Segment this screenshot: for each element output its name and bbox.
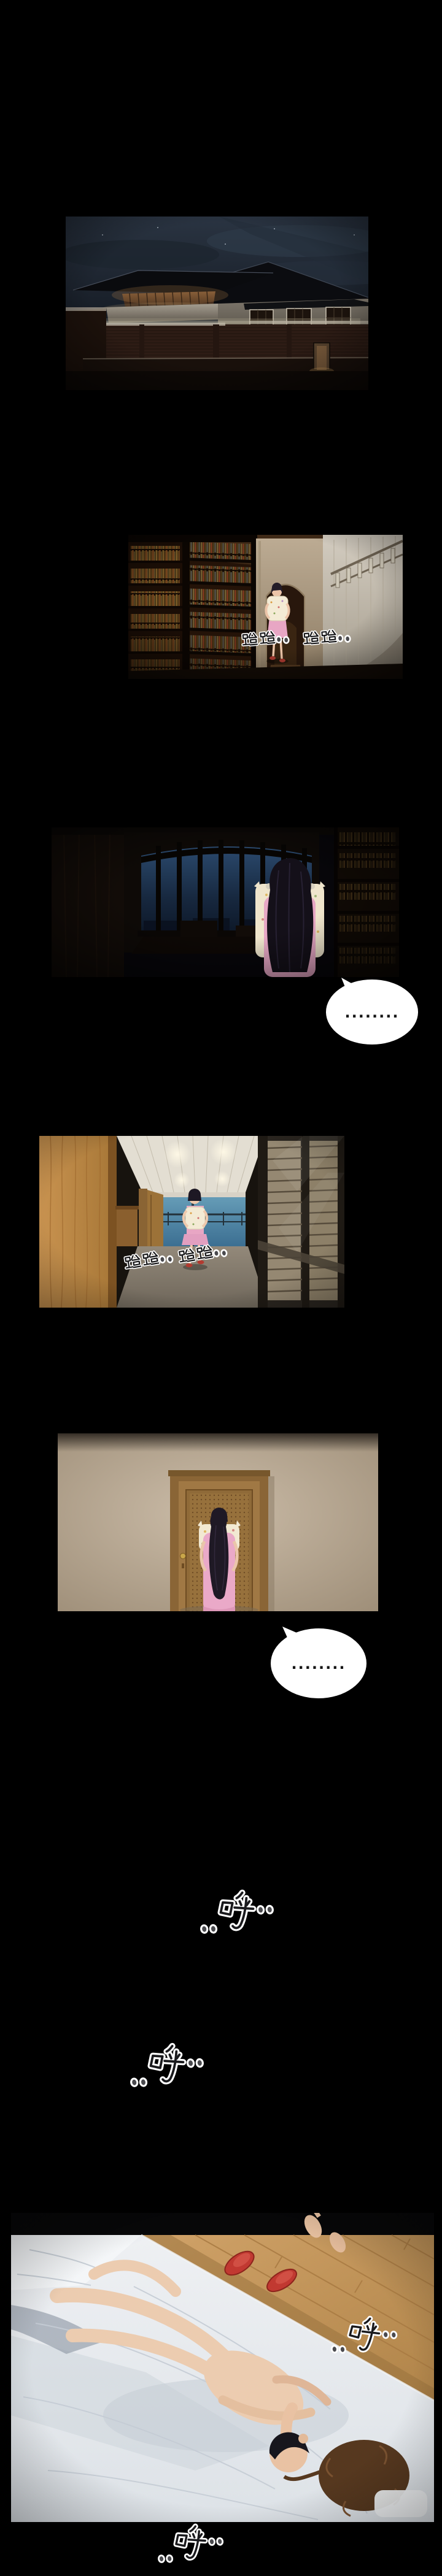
panel-library-archway [128,535,403,679]
bubble-dots-text: ........ [345,1004,400,1021]
speech-bubble-2: ........ [271,1627,366,1698]
panel-bedroom-door [58,1433,378,1611]
panel-corridor-walk [39,1136,344,1308]
sfx-breath-4 [158,2524,223,2564]
speech-bubble-1: ........ [326,978,418,1045]
panel-night-house-exterior [66,217,368,390]
panel-dark-study-bay-window [52,827,399,977]
panel-bedroom-couple [11,2213,434,2522]
webtoon-page: ........ ........ 蹬蹬.. 蹬蹬.. 蹬蹬.. 蹬蹬.. ..… [0,0,442,2576]
door-knob [180,1554,186,1559]
sfx-breath-1 [201,1890,274,1935]
bubble-dots-text: ........ [292,1655,346,1673]
sfx-breath-2 [131,2044,204,2088]
